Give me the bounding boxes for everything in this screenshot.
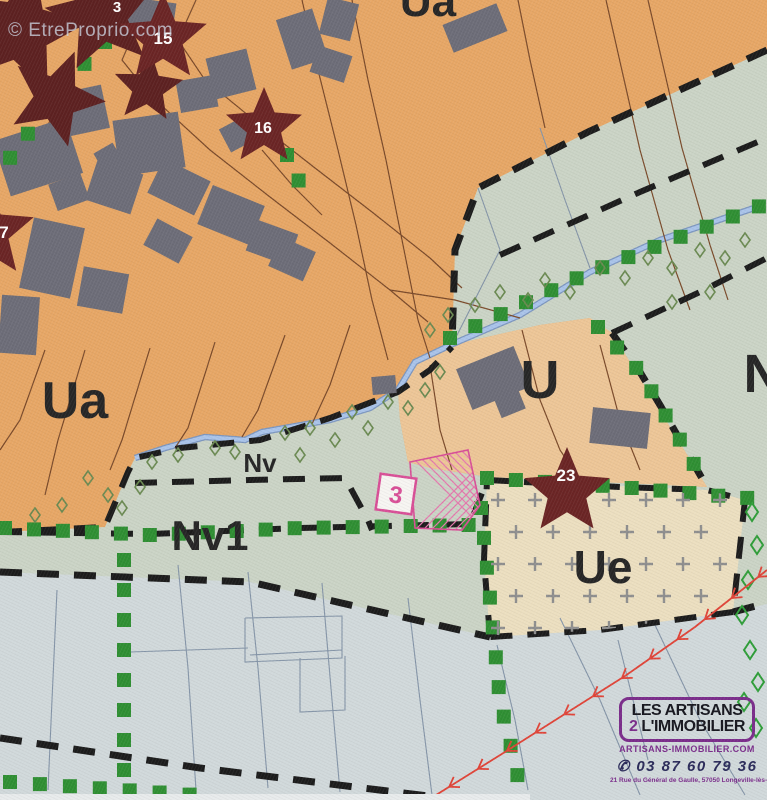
green-square-marker: [259, 523, 273, 537]
green-square-marker: [591, 320, 605, 334]
green-square-marker: [443, 331, 457, 345]
green-square-marker: [143, 528, 157, 542]
green-square-marker: [3, 775, 17, 789]
hedge-diamond: [742, 571, 754, 589]
green-square-marker: [492, 680, 506, 694]
star-number: 16: [254, 120, 272, 137]
green-square-marker: [27, 522, 41, 536]
hedge-diamond: [746, 503, 758, 521]
green-square-marker: [700, 220, 714, 234]
agency-address: 21 Rue du Général de Gaulle, 57050 Longe…: [610, 778, 764, 785]
photo-edge-strip: [0, 794, 530, 800]
hedge-diamond: [751, 536, 763, 554]
green-square-marker: [114, 527, 128, 541]
green-square-marker: [673, 433, 687, 447]
vegetation-diamond: [230, 445, 240, 459]
green-square-marker: [85, 525, 99, 539]
agency-logo: LES ARTISANS 2 L'IMMOBILIER ARTISANS-IMM…: [610, 697, 764, 785]
vegetation-diamond: [740, 233, 750, 247]
green-square-marker: [629, 361, 643, 375]
green-square-marker: [117, 763, 131, 777]
parcel-tag: 3: [376, 474, 417, 515]
green-square-marker: [510, 768, 524, 782]
agency-logo-frame: LES ARTISANS 2 L'IMMOBILIER: [619, 697, 755, 742]
green-square-marker: [56, 524, 70, 538]
green-square-marker: [477, 531, 491, 545]
green-square-marker: [117, 583, 131, 597]
building: [77, 266, 129, 313]
green-square-marker: [687, 457, 701, 471]
green-square-marker: [610, 341, 624, 355]
green-square-marker: [644, 384, 658, 398]
green-square-marker: [483, 591, 497, 605]
green-square-marker: [674, 230, 688, 244]
green-square-marker: [497, 710, 511, 724]
green-square-marker: [346, 520, 360, 534]
agency-website: ARTISANS-IMMOBILIER.COM: [610, 745, 764, 754]
green-square-marker: [570, 271, 584, 285]
green-square-marker: [509, 473, 523, 487]
green-square-marker: [63, 779, 77, 793]
zone-label-U: U: [521, 350, 560, 410]
green-square-marker: [117, 733, 131, 747]
star-number: 7: [0, 223, 9, 242]
vegetation-diamond: [695, 243, 705, 257]
zone-label-Ua: Ua: [42, 372, 110, 430]
green-square-marker: [489, 650, 503, 664]
green-square-marker: [480, 471, 494, 485]
green-square-marker: [288, 521, 302, 535]
green-square-marker: [682, 486, 696, 500]
zone-label-N: N: [744, 344, 767, 404]
building: [589, 407, 650, 449]
green-square-marker: [0, 521, 12, 535]
green-square-marker: [468, 319, 482, 333]
green-square-marker: [117, 613, 131, 627]
vegetation-diamond: [117, 501, 127, 515]
zone-label-Ua: Ua: [400, 0, 457, 26]
green-square-marker: [292, 174, 306, 188]
green-square-marker: [752, 199, 766, 213]
green-square-marker: [117, 643, 131, 657]
vegetation-diamond: [667, 295, 677, 309]
star-number: 3: [113, 0, 121, 16]
green-square-marker: [21, 127, 35, 141]
green-square-marker: [659, 409, 673, 423]
green-square-marker: [117, 673, 131, 687]
green-square-marker: [317, 521, 331, 535]
watermark: © EtreProprio.com: [8, 20, 173, 42]
green-square-marker: [33, 777, 47, 791]
green-square-marker: [726, 210, 740, 224]
green-square-marker: [375, 520, 389, 534]
agency-name-line2: 2 L'IMMOBILIER: [629, 719, 745, 735]
green-square-marker: [3, 151, 17, 165]
green-square-marker: [654, 484, 668, 498]
zone-label-Nv1: Nv1: [171, 512, 248, 559]
green-square-marker: [625, 481, 639, 495]
vegetation-diamond: [620, 271, 630, 285]
green-square-marker: [621, 250, 635, 264]
zone-boundary-dashed: [612, 258, 767, 333]
vegetation-diamond: [667, 261, 677, 275]
vegetation-diamond: [295, 448, 305, 462]
zoning-map-photo: 331516723UaUaUNNvNv1Ue © EtreProprio.com…: [0, 0, 767, 800]
zone-label-Ue: Ue: [574, 541, 633, 593]
zone-label-Nv: Nv: [243, 448, 277, 478]
green-square-marker: [117, 703, 131, 717]
green-square-marker: [93, 781, 107, 795]
zoning-map-svg: 331516723UaUaUNNvNv1Ue: [0, 0, 767, 800]
agency-name-line2-text: L'IMMOBILIER: [637, 718, 745, 735]
vegetation-diamond: [363, 421, 373, 435]
agency-name-line1: LES ARTISANS: [629, 703, 745, 719]
vegetation-diamond: [720, 251, 730, 265]
green-square-marker: [648, 240, 662, 254]
star-number: 23: [557, 466, 576, 485]
vegetation-diamond: [330, 433, 340, 447]
building: [371, 375, 396, 395]
green-square-marker: [494, 307, 508, 321]
agency-phone: ✆ 03 87 60 79 36: [610, 759, 764, 774]
building: [0, 295, 40, 356]
green-square-marker: [474, 501, 488, 515]
green-square-marker: [117, 553, 131, 567]
vegetation-diamond: [495, 285, 505, 299]
